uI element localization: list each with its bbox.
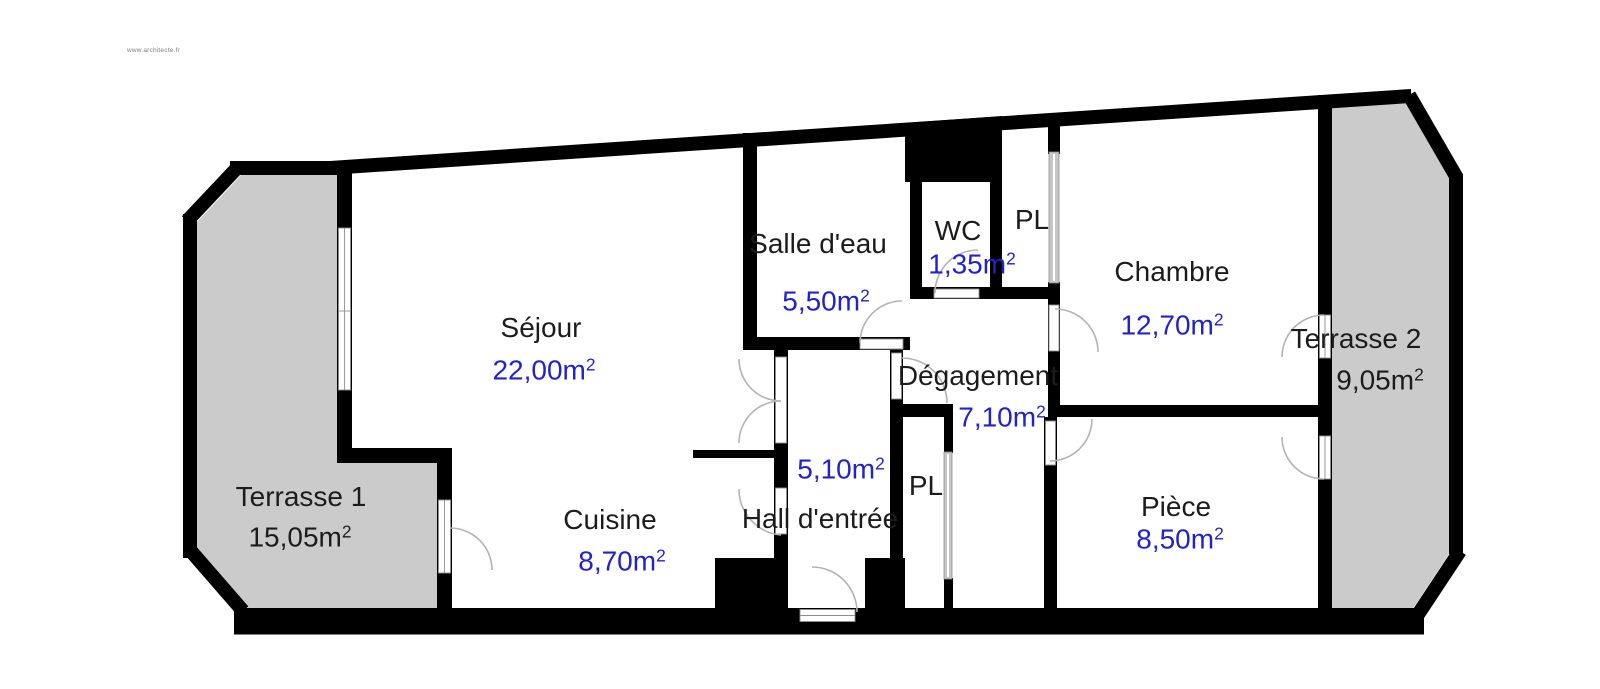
right-wall bbox=[1449, 174, 1463, 554]
pl-bas-right-wall-bottom bbox=[944, 578, 953, 608]
top-wall bbox=[330, 89, 1411, 175]
watermark: www.architecte.fr bbox=[127, 48, 180, 55]
piece-terrasse2-door-arc bbox=[1282, 437, 1324, 479]
pl-haut-right-wall-top bbox=[1048, 120, 1060, 154]
chambre-area-label: 12,70m2 bbox=[1120, 310, 1223, 339]
sejour-cuisine-divider bbox=[693, 450, 775, 458]
cuisine-area-label: 8,70m2 bbox=[578, 546, 665, 575]
salle-eau-name-label: Salle d'eau bbox=[749, 230, 887, 258]
terrasse2-name-label: Terrasse 2 bbox=[1291, 325, 1422, 353]
left-wall bbox=[183, 214, 197, 558]
salle-eau-area-label: 5,50m2 bbox=[782, 286, 869, 315]
chambre-door-opening bbox=[1049, 305, 1059, 351]
entry-left-block bbox=[715, 558, 788, 608]
terrasse-2-floor bbox=[1330, 98, 1453, 610]
chambre-piece-wall bbox=[1048, 405, 1332, 417]
degagement-top-wall bbox=[910, 287, 1060, 299]
pl-haut-right-wall-bottom bbox=[1048, 282, 1060, 299]
terrasse2-area-label: 9,05m2 bbox=[1336, 365, 1423, 394]
degagement-name-label: Dégagement bbox=[898, 362, 1058, 390]
cuisine-terrasse-door-arc bbox=[450, 528, 492, 570]
chambre-door-arc bbox=[1055, 309, 1098, 352]
hall-name-label: Hall d'entrée bbox=[742, 505, 898, 533]
pl-bas-top-wall bbox=[890, 404, 953, 417]
pl-bas-label: PL bbox=[909, 472, 943, 500]
pl-haut-label: PL bbox=[1015, 206, 1049, 234]
terrasse1-top-wall bbox=[230, 161, 346, 175]
floorplan-page: www.architecte.fr Séjour 22,00m2 Cuisine… bbox=[0, 0, 1600, 689]
piece-area-label: 8,50m2 bbox=[1136, 524, 1223, 553]
sejour-step-wall bbox=[337, 448, 452, 463]
piece-name-label: Pièce bbox=[1141, 493, 1211, 521]
wc-door-opening bbox=[934, 289, 979, 298]
sejour-name-label: Séjour bbox=[501, 314, 582, 342]
salledeau-door-opening bbox=[860, 339, 903, 349]
entrance-door-arc bbox=[812, 567, 857, 612]
sejour-double-door-opening bbox=[776, 357, 787, 443]
chambre-name-label: Chambre bbox=[1114, 258, 1229, 286]
wc-left-wall bbox=[910, 180, 922, 299]
sejour-area-label: 22,00m2 bbox=[492, 355, 595, 384]
hall-area-label: 5,10m2 bbox=[797, 454, 884, 483]
pl-bas-right-wall-top bbox=[944, 417, 953, 453]
degagement-area-label: 7,10m2 bbox=[958, 402, 1045, 431]
wc-area-label: 1,35m2 bbox=[928, 249, 1015, 278]
wc-top-block bbox=[905, 116, 1002, 182]
entry-right-block bbox=[865, 558, 905, 608]
piece-door-opening bbox=[1046, 421, 1056, 465]
terrasse1-name-label: Terrasse 1 bbox=[236, 483, 367, 511]
wc-name-label: WC bbox=[935, 217, 982, 245]
terrasse1-area-label: 15,05m2 bbox=[248, 522, 351, 551]
cuisine-name-label: Cuisine bbox=[563, 506, 656, 534]
